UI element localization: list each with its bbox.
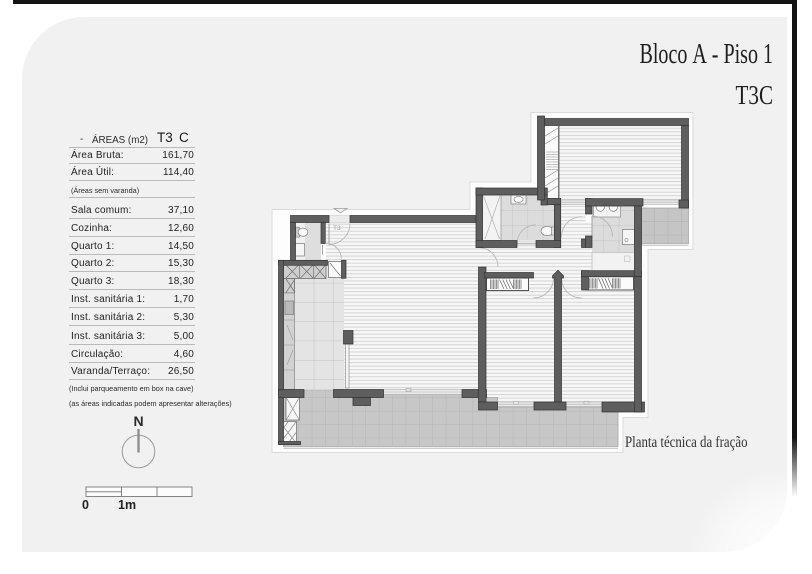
svg-text:T3: T3	[333, 225, 341, 232]
